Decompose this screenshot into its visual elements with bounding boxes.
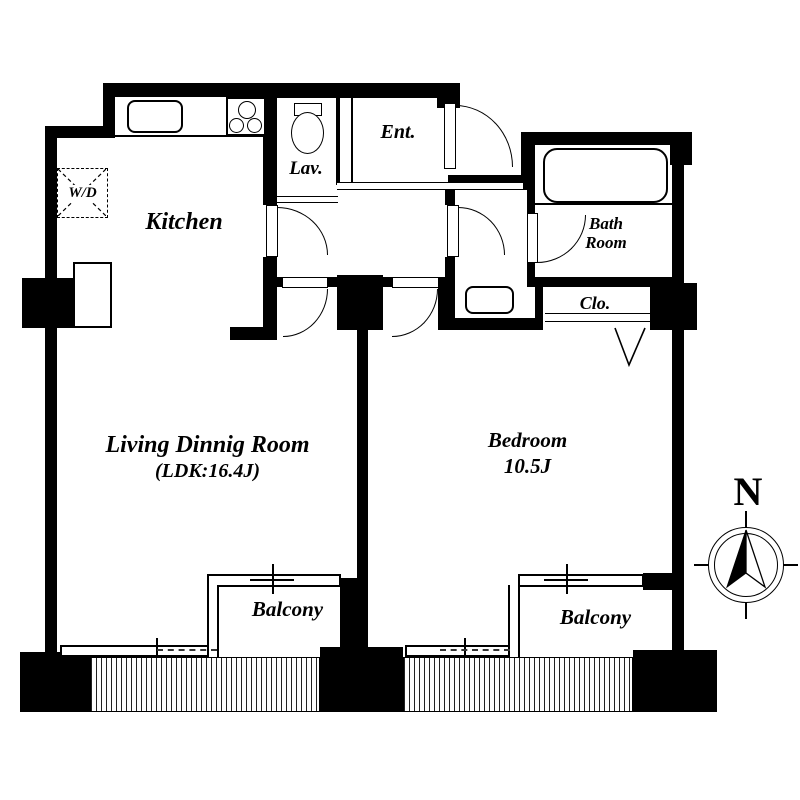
pillar-bottom-left bbox=[20, 652, 90, 712]
window-screen-left bbox=[157, 649, 217, 651]
closet-label: Clo. bbox=[564, 293, 626, 314]
lavatory-label: Lav. bbox=[280, 158, 332, 180]
closet-sliding-door bbox=[545, 313, 650, 322]
wall-bedroom-right bbox=[672, 330, 684, 653]
bedroom-door-arc bbox=[392, 289, 438, 337]
compass: N bbox=[690, 465, 800, 625]
bath-door bbox=[527, 213, 538, 263]
wall-room-divider bbox=[357, 330, 368, 578]
stove-burner-right bbox=[247, 118, 262, 133]
wall-closet-left bbox=[535, 287, 543, 318]
balcony-right-deck bbox=[403, 657, 633, 712]
bedroom-label: Bedroom bbox=[460, 428, 595, 453]
washer-dryer-label: W/D bbox=[67, 185, 97, 202]
bathroom-label: Bath Room bbox=[568, 214, 644, 252]
living-door-arc bbox=[283, 289, 328, 337]
wall-kitchen-hall-lower bbox=[263, 257, 277, 333]
wall-washroom-left-lower bbox=[445, 257, 455, 285]
entrance-step-line bbox=[337, 182, 523, 190]
stove-burner-left bbox=[229, 118, 244, 133]
wall-washroom-bottom bbox=[438, 318, 543, 330]
entrance-door bbox=[444, 103, 456, 169]
pillar-bottom-middle bbox=[320, 647, 403, 712]
balcony-left-deck bbox=[90, 657, 320, 712]
window-tick-right-horizontal bbox=[544, 579, 588, 581]
wall-washroom-left-upper bbox=[445, 190, 455, 205]
kitchen-sink bbox=[127, 100, 183, 133]
closet-arrow-icon bbox=[612, 326, 648, 368]
bedroom-size: 10.5J bbox=[460, 454, 595, 479]
washbasin bbox=[465, 286, 514, 314]
compass-north-label: N bbox=[720, 468, 776, 515]
compass-needle-icon bbox=[720, 525, 772, 593]
wall-kitchen-bottom-stub bbox=[230, 327, 277, 340]
wall-left-lower bbox=[45, 328, 57, 652]
living-room-size: (LDK:16.4J) bbox=[85, 460, 330, 483]
wall-bath-top bbox=[527, 132, 692, 145]
washroom-door-arc bbox=[458, 207, 505, 255]
wall-bath-right bbox=[672, 165, 684, 283]
wall-left-upper-horizontal bbox=[45, 126, 115, 138]
bedroom-window-lower bbox=[405, 645, 512, 657]
bathroom-label-line1: Bath bbox=[589, 214, 623, 233]
balcony-right-label: Balcony bbox=[538, 605, 653, 630]
stove-burner-top bbox=[238, 101, 256, 119]
kitchen-label: Kitchen bbox=[124, 209, 244, 236]
kitchen-door bbox=[266, 205, 278, 257]
toilet-bowl bbox=[291, 112, 324, 154]
wall-lavatory-right bbox=[336, 95, 340, 185]
wall-hall-bottom-c bbox=[383, 277, 392, 287]
kitchen-door-arc bbox=[277, 207, 328, 255]
lavatory-sliding-door bbox=[277, 196, 338, 203]
living-room-label: Living Dinnig Room bbox=[85, 432, 330, 459]
bedroom-window-connector bbox=[508, 585, 520, 657]
living-window-connector bbox=[207, 585, 219, 657]
pillar-bottom-right bbox=[633, 650, 717, 712]
line-entrance-left bbox=[351, 95, 353, 185]
bathroom-label-line2: Room bbox=[585, 233, 627, 252]
living-door bbox=[282, 277, 328, 288]
pillar-closet bbox=[650, 283, 697, 330]
wall-balcony-right-stub bbox=[643, 573, 680, 590]
floor-plan: W/D Kitchen Lav. Ent. Bath Room Clo. Liv… bbox=[0, 0, 800, 800]
balcony-left-label: Balcony bbox=[230, 597, 345, 622]
wall-bath-left-upper bbox=[527, 145, 535, 213]
entrance-label: Ent. bbox=[368, 121, 428, 144]
washroom-door bbox=[447, 205, 459, 257]
bath-inner-line bbox=[535, 203, 672, 205]
pillar-left bbox=[22, 278, 77, 328]
entrance-door-arc bbox=[455, 105, 513, 167]
window-screen-right bbox=[440, 649, 510, 651]
living-window-lower bbox=[60, 645, 218, 657]
washer-dryer-box: W/D bbox=[57, 168, 108, 218]
bedroom-door bbox=[392, 277, 439, 288]
window-tick-left-horizontal bbox=[250, 579, 294, 581]
bathtub bbox=[543, 148, 668, 203]
wall-left-upper bbox=[45, 138, 57, 278]
wall-bath-right-corner bbox=[670, 132, 692, 165]
pillar-hall bbox=[337, 275, 383, 330]
kitchen-shelf bbox=[73, 262, 112, 328]
